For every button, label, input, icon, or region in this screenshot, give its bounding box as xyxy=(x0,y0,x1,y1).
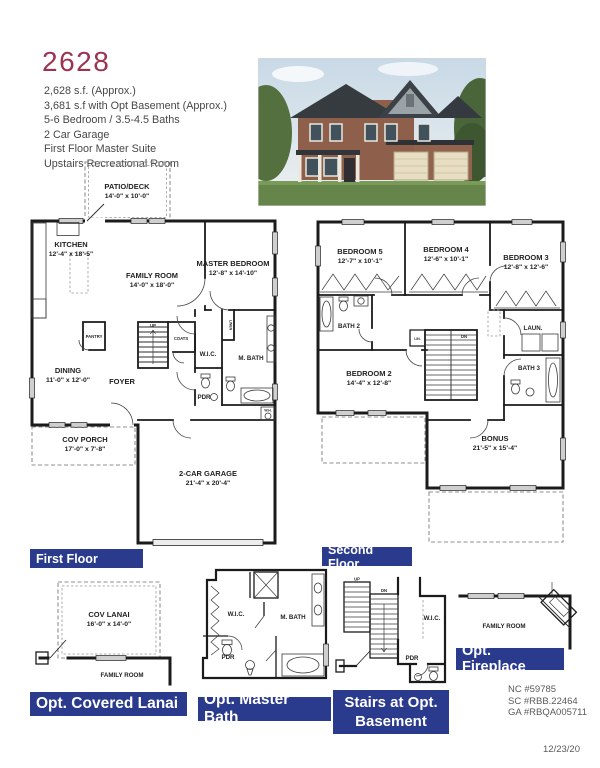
room-label-dining: DINING xyxy=(55,366,81,375)
room-label-bath2: BATH 2 xyxy=(338,323,360,330)
opt-basement-bar-line1: Stairs at Opt. xyxy=(344,693,437,712)
room-label-foyer: FOYER xyxy=(109,377,135,386)
opt-fireplace-plan: FAMILY ROOM xyxy=(452,578,592,653)
opt-area-outline xyxy=(322,417,425,463)
stairs-up-label: UP xyxy=(150,323,156,328)
opt-fireplace-bar-label: Opt. Fireplace xyxy=(462,643,558,675)
room-label-laundry: LAUN. xyxy=(524,325,543,332)
room-label-coats: COATS xyxy=(174,336,189,341)
room-dims-bonus: 21'-5" x 15'-4" xyxy=(473,445,517,452)
date-stamp: 12/23/20 xyxy=(543,744,580,755)
basement-stairs xyxy=(344,582,398,658)
opt-master-bath-bar: Opt. Master Bath xyxy=(198,697,331,721)
room-label-opt-wic: W.I.C. xyxy=(228,611,245,618)
room-label-wic: W.I.C. xyxy=(200,351,217,358)
room-label-familyroom: FAMILY ROOM xyxy=(101,672,144,679)
basement-fixtures xyxy=(415,667,439,681)
room-label-bonus: BONUS xyxy=(481,434,508,443)
room-label-kitchen: KITCHEN xyxy=(54,240,87,249)
stairs-up-label: UP xyxy=(354,577,360,582)
room-dims-bed3: 12'-8" x 12'-6" xyxy=(504,264,548,271)
room-label-pantry: PANTRY xyxy=(86,334,103,339)
room-dims-lanai: 16'-0" x 14'-0" xyxy=(87,621,131,628)
room-label-master: MASTER BEDROOM xyxy=(197,259,270,268)
room-label-pdr: PDR xyxy=(197,394,211,401)
floorplan-sheet: 2628 2,628 s.f. (Approx.) 3,681 s.f with… xyxy=(0,0,600,768)
first-floor-doors xyxy=(79,204,229,438)
first-floor-bar-label: First Floor xyxy=(36,552,98,566)
opt-lanai-plan: COV LANAI 16'-0" x 14'-0" FAMILY ROOM xyxy=(30,576,195,688)
opt-lanai-bar-label: Opt. Covered Lanai xyxy=(36,695,178,713)
room-label-bed3: BEDROOM 3 xyxy=(503,253,548,262)
room-label-porch: COV PORCH xyxy=(62,435,107,444)
room-dims-bed5: 12'-7" x 10'-1" xyxy=(338,258,382,265)
opt-basement-stairs-bar: Stairs at Opt. Basement xyxy=(333,690,449,734)
kitchen-counters xyxy=(32,223,88,319)
spec-line: 2,628 s.f. (Approx.) xyxy=(44,84,227,99)
spec-line: 5-6 Bedroom / 3.5-4.5 Baths xyxy=(44,113,227,128)
opt-basement-stairs-plan: UP DN W.I.C. PDR xyxy=(332,574,452,688)
second-floor-bar-label: Second Floor xyxy=(328,543,406,571)
room-dims-bed2: 14'-4" x 12'-8" xyxy=(347,380,391,387)
room-label-patio: PATIO/DECK xyxy=(104,182,150,191)
room-dims-dining: 11'-0" x 12'-0" xyxy=(46,377,90,384)
room-label-bsmt-pdr: PDR xyxy=(405,655,419,662)
mbath-fixtures xyxy=(222,574,329,676)
fireplace-walls xyxy=(460,582,576,648)
stairs-dn-label: DN xyxy=(381,588,387,593)
second-floor-plan: BEDROOM 5 12'-7" x 10'-1" BEDROOM 4 12'-… xyxy=(312,210,574,548)
license-line: GA #RBQA005711 xyxy=(508,707,587,719)
mbath-walls xyxy=(203,570,326,678)
room-dims-kitchen: 12'-4" x 18'-5" xyxy=(49,251,93,258)
room-dims-master: 12'-8" x 14'-10" xyxy=(209,270,257,277)
laundry-fixtures xyxy=(522,334,558,351)
room-dims-garage: 21'-4" x 20'-4" xyxy=(186,480,230,487)
garage-door xyxy=(153,540,263,546)
first-floor-plan: PATIO/DECK 14'-0" x 10'-0" KITCHEN 12'-4… xyxy=(25,158,310,548)
opt-basement-bar-line2: Basement xyxy=(355,712,427,731)
room-label-bed4: BEDROOM 4 xyxy=(423,245,469,254)
second-floor-bar: Second Floor xyxy=(322,547,412,566)
opt-fireplace-bar: Opt. Fireplace xyxy=(456,648,564,670)
closet-rods xyxy=(320,274,560,308)
room-label-mbath: M. BATH xyxy=(238,355,264,362)
spec-line: First Floor Master Suite xyxy=(44,142,227,157)
room-label-opt-mbath: M. BATH xyxy=(280,614,306,621)
room-dims-bed4: 12'-6" x 10'-1" xyxy=(424,256,468,263)
room-dims-family: 14'-0" x 18'-0" xyxy=(130,282,174,289)
room-label-lanai: COV LANAI xyxy=(88,610,129,619)
attic-access xyxy=(488,310,500,336)
license-numbers: NC #59785 SC #RBB.22464 GA #RBQA005711 xyxy=(508,684,587,719)
room-label-bath3: BATH 3 xyxy=(518,365,540,372)
room-label-fp-family: FAMILY ROOM xyxy=(483,623,526,630)
room-label-bed5: BEDROOM 5 xyxy=(337,247,382,256)
lanai-outline-inner xyxy=(62,586,156,654)
room-dims-porch: 17'-0" x 7'-8" xyxy=(65,446,106,453)
room-label-lin: LIN. xyxy=(414,337,420,341)
license-line: NC #59785 xyxy=(508,684,587,696)
spec-line: 3,681 s.f with Opt Basement (Approx.) xyxy=(44,99,227,114)
opt-master-bath-bar-label: Opt. Master Bath xyxy=(204,691,325,727)
opt-area-outline xyxy=(429,492,563,542)
second-floor-stairs xyxy=(425,330,477,400)
opt-lanai-bar: Opt. Covered Lanai xyxy=(30,692,187,716)
room-dims-patio: 14'-0" x 10'-0" xyxy=(105,193,149,200)
model-number: 2628 xyxy=(42,46,110,78)
license-line: SC #RBB.22464 xyxy=(508,696,587,708)
room-label-garage: 2-CAR GARAGE xyxy=(179,469,237,478)
room-label-linen: LINEN xyxy=(229,320,233,331)
first-floor-bar: First Floor xyxy=(30,549,143,568)
room-label-opt-pdr: PDR xyxy=(221,654,235,661)
lanai-outline xyxy=(58,582,160,658)
room-label-bsmt-wic: W.I.C. xyxy=(424,615,441,622)
room-label-family: FAMILY ROOM xyxy=(126,271,178,280)
first-floor-stairs xyxy=(138,327,168,364)
patio-deck-outline xyxy=(85,162,170,221)
spec-line: 2 Car Garage xyxy=(44,128,227,143)
room-label-bed2: BEDROOM 2 xyxy=(346,369,391,378)
opt-master-bath-plan: W.I.C. M. BATH PDR xyxy=(198,558,333,692)
water-heater-label: W.H. xyxy=(264,409,271,413)
stairs-dn-label: DN xyxy=(461,334,467,339)
